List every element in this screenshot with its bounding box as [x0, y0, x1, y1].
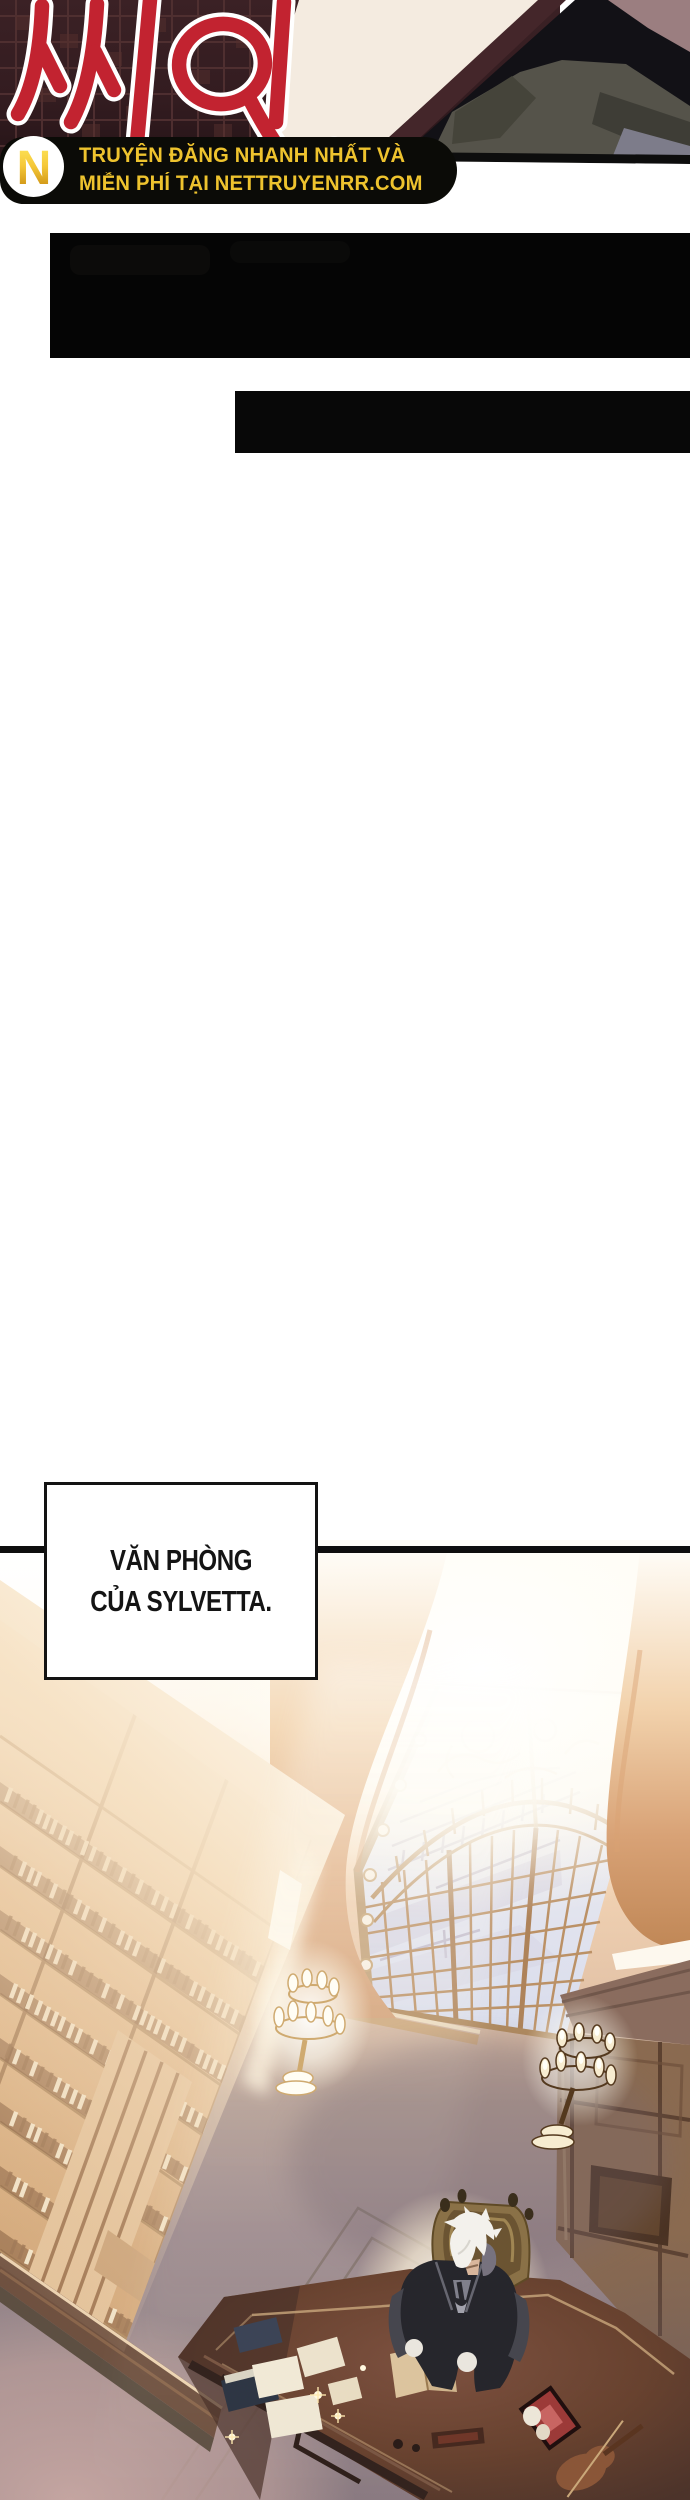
svg-text:N: N [17, 142, 52, 195]
